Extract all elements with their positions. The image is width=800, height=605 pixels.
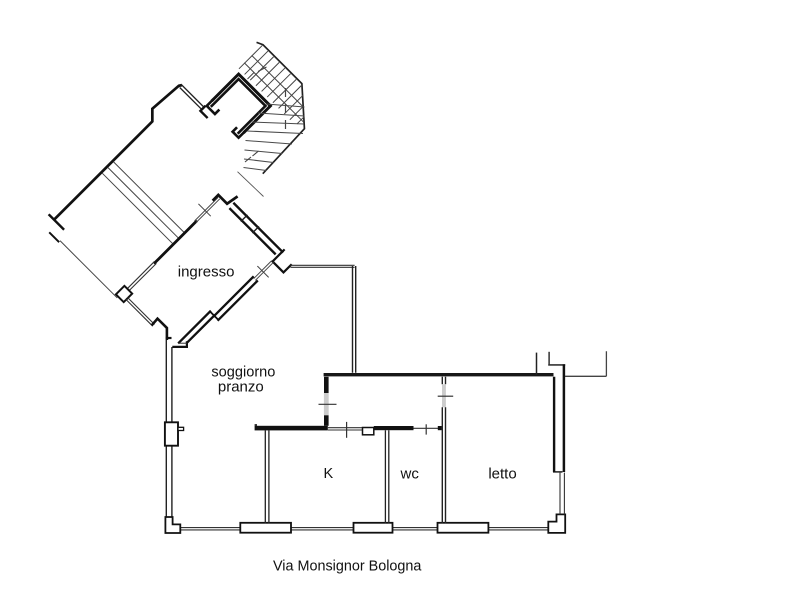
- svg-text:pranzo: pranzo: [218, 378, 264, 395]
- svg-text:wc: wc: [400, 465, 420, 482]
- svg-text:Via Monsignor Bologna: Via Monsignor Bologna: [273, 558, 422, 575]
- svg-text:ingresso: ingresso: [178, 263, 235, 280]
- svg-text:K: K: [323, 466, 333, 482]
- svg-text:letto: letto: [488, 465, 516, 482]
